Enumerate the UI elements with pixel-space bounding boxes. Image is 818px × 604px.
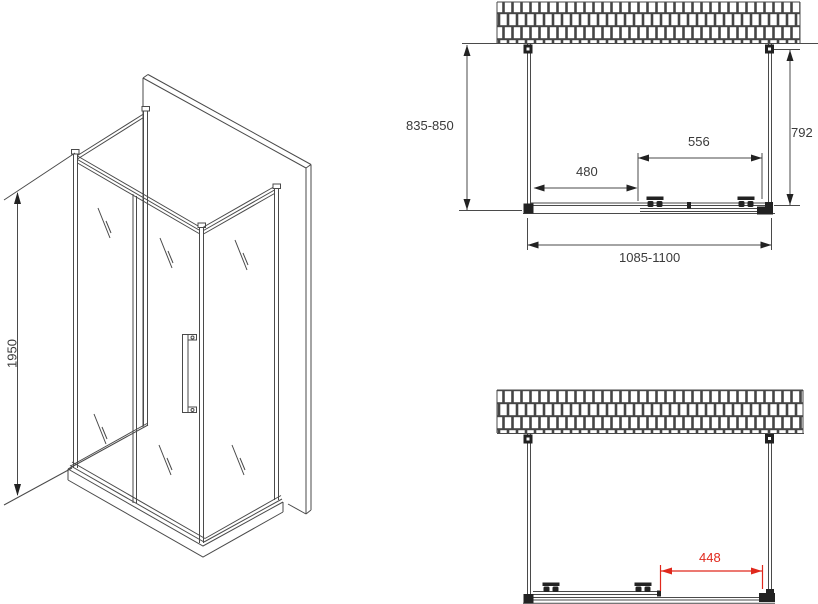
drawing-linework (0, 0, 818, 604)
dimension-total-width (528, 218, 772, 250)
right-wall-profile (765, 44, 774, 207)
left-wall-profile (524, 44, 533, 213)
roller-assembly (543, 583, 560, 593)
left-glass-panel (72, 107, 150, 469)
dimension-556 (638, 153, 762, 201)
dim-label-556: 556 (688, 134, 710, 149)
plan-view-bottom (497, 390, 804, 604)
left-wall-profile (524, 434, 533, 595)
dimension-depth-835-850 (459, 45, 522, 211)
plan-view-top (459, 2, 818, 250)
roller-assembly (635, 583, 652, 593)
isometric-view (4, 75, 311, 558)
wall-hatch-bottom (497, 390, 804, 434)
base-tray (68, 424, 283, 558)
back-wall-slab (143, 75, 311, 515)
right-wall-profile (765, 434, 774, 591)
door-handle (183, 335, 197, 413)
glass-reflection-marks (94, 208, 248, 475)
dimension-opening-448 (661, 565, 763, 591)
right-glass-panel (204, 184, 281, 500)
dim-label-total-width: 1085-1100 (619, 250, 680, 265)
dim-label-opening-448: 448 (699, 550, 721, 565)
dim-label-480: 480 (576, 164, 598, 179)
dimension-480 (534, 185, 638, 192)
dim-label-792: 792 (791, 125, 813, 140)
dim-label-height-1950: 1950 (5, 324, 20, 384)
wall-hatch-top (462, 2, 818, 44)
technical-drawing-canvas: 1950 835-850 792 556 480 1085-1100 448 (0, 0, 818, 604)
dim-label-depth-835-850: 835-850 (406, 118, 454, 133)
